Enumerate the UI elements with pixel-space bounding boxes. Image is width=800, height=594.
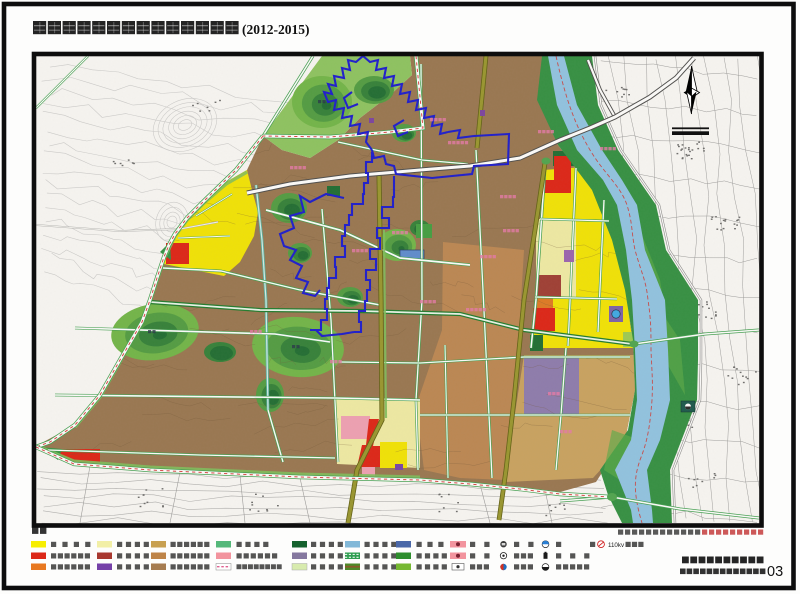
svg-text:(2012-2015): (2012-2015) — [242, 22, 310, 37]
svg-text:03: 03 — [767, 564, 783, 580]
svg-text:110kv: 110kv — [608, 542, 625, 549]
